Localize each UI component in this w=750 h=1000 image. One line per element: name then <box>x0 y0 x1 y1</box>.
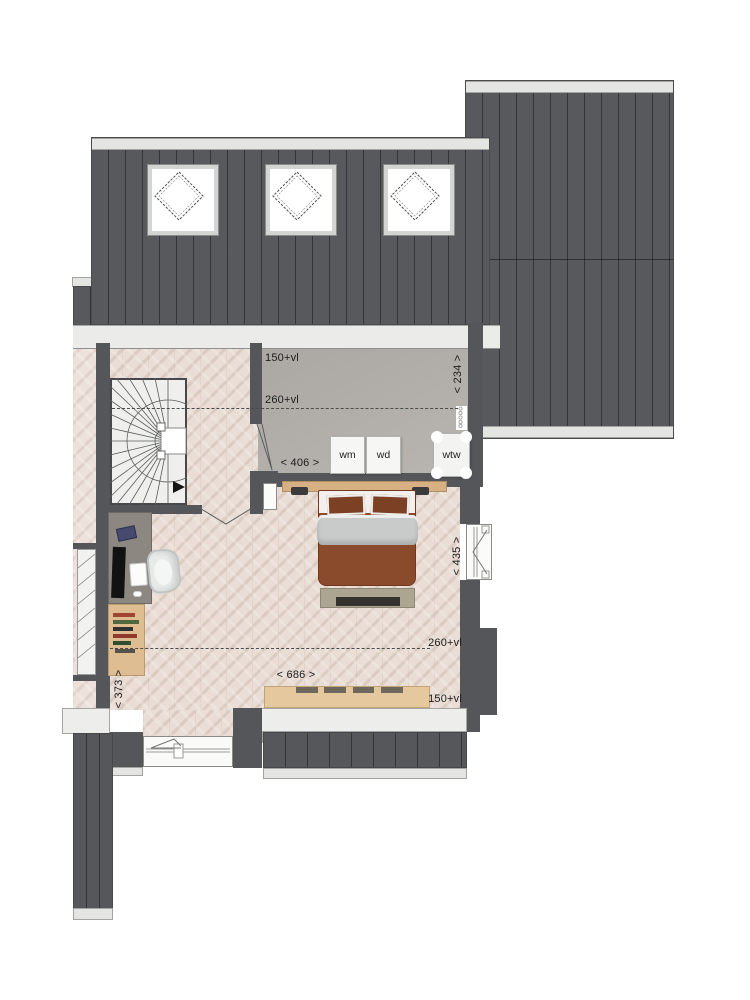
sideboard-cushion <box>324 687 346 693</box>
double-bed <box>318 490 416 586</box>
wall-stairs-right <box>250 343 262 424</box>
spiral-stairs <box>110 378 187 505</box>
bottom-window-drawing <box>143 736 233 767</box>
sideboard-cushion <box>381 687 403 693</box>
dim-bedroom-width: < 686 > <box>272 668 320 682</box>
skylight-1-glass <box>152 169 206 223</box>
main-roof-ridge-trim <box>466 81 673 93</box>
skylight-2 <box>266 165 336 235</box>
book <box>113 641 131 645</box>
wall-neighbor-bottom <box>73 675 96 681</box>
skylight-3-glass <box>388 169 442 223</box>
dryer-label: wd <box>377 449 390 461</box>
ventilation-grille-dots <box>456 406 465 428</box>
skylight-2-glass <box>270 169 324 223</box>
book <box>113 627 133 631</box>
spiral-stairs-drawing <box>110 378 187 505</box>
headroom-line-260-bottom <box>110 648 430 649</box>
dim-tech-knee-wall: 150+vl <box>265 351 299 365</box>
chair-seat <box>153 558 174 586</box>
wtw-connector <box>431 467 443 479</box>
dormer-roof <box>91 137 490 325</box>
skylight-3 <box>384 165 454 235</box>
washing-machine-label: wm <box>339 449 355 461</box>
office-chair <box>146 547 182 594</box>
main-roof-fold-line <box>466 259 673 260</box>
bottom-roof-trim <box>263 768 467 779</box>
side-window <box>466 524 492 580</box>
main-roof <box>465 80 674 439</box>
bottom-roof-trim-left <box>112 767 143 776</box>
book <box>113 613 135 617</box>
main-roof-eaves-trim <box>466 426 673 438</box>
wtw-connector <box>460 431 472 443</box>
mouse <box>133 591 142 597</box>
floor-edge-band <box>73 325 500 349</box>
headroom-line-260-top <box>112 408 458 409</box>
keyboard <box>129 562 148 586</box>
heat-recovery-label: wtw <box>442 449 460 461</box>
sill-bottom-right <box>245 708 467 732</box>
bed-foot-bench <box>320 588 415 608</box>
wall-neighbor-top <box>73 543 96 549</box>
sill-bottom-left <box>62 708 110 734</box>
wall-bedroom-right-step <box>480 628 497 715</box>
sideboard-cushion <box>353 687 374 693</box>
sideboard <box>264 686 430 708</box>
door-threshold <box>263 483 277 510</box>
floor-plan: wm wd wtw 150+vl 260+vl < 406 > < 234 > … <box>0 0 750 1000</box>
heat-recovery-unit: wtw <box>433 433 470 477</box>
sideboard-cushion <box>296 687 318 693</box>
dim-landing-width: < 373 > <box>112 659 126 719</box>
pillow-right <box>371 494 410 515</box>
wall-window-left <box>110 732 143 768</box>
wall-technical-right <box>468 323 483 487</box>
wall-bedroom-right-top <box>460 487 480 524</box>
pillow-left <box>327 494 366 515</box>
dim-tech-headroom: 260+vl <box>265 393 299 407</box>
dormer-roof-top-trim <box>92 138 489 150</box>
wtw-connector <box>460 467 472 479</box>
monitor <box>111 547 126 598</box>
ventilation-grille <box>456 406 467 430</box>
dim-tech-width: < 406 > <box>276 456 324 470</box>
bed-blanket <box>317 515 418 545</box>
book <box>115 649 135 653</box>
book <box>113 620 139 624</box>
dim-tech-depth: < 234 > <box>451 344 465 404</box>
bottom-roof-band <box>263 732 467 768</box>
dormer-left-cheek <box>73 286 92 326</box>
wtw-connector <box>431 431 443 443</box>
washing-machine: wm <box>330 436 365 474</box>
main-roof-planks <box>466 93 673 426</box>
skylight-1 <box>148 165 218 235</box>
wall-door-header <box>250 471 278 483</box>
neighbor-stairs-drawing <box>78 550 95 674</box>
party-wall-projection <box>73 733 113 909</box>
book <box>113 634 137 638</box>
wall-stairs-right-lower <box>250 483 263 514</box>
party-wall-cap <box>73 908 113 920</box>
dim-bedroom-depth: < 435 > <box>450 526 464 586</box>
dim-bedroom-headroom: 260+vl <box>412 636 462 650</box>
dim-bedroom-knee-wall: 150+vl <box>412 692 462 706</box>
wall-window-right <box>233 708 262 768</box>
bench-cushion <box>336 597 400 606</box>
neighbor-stairs <box>77 549 96 675</box>
sconce-left <box>291 487 308 495</box>
bottom-window <box>143 736 233 767</box>
side-window-drawing <box>466 524 492 580</box>
dryer: wd <box>366 436 401 474</box>
